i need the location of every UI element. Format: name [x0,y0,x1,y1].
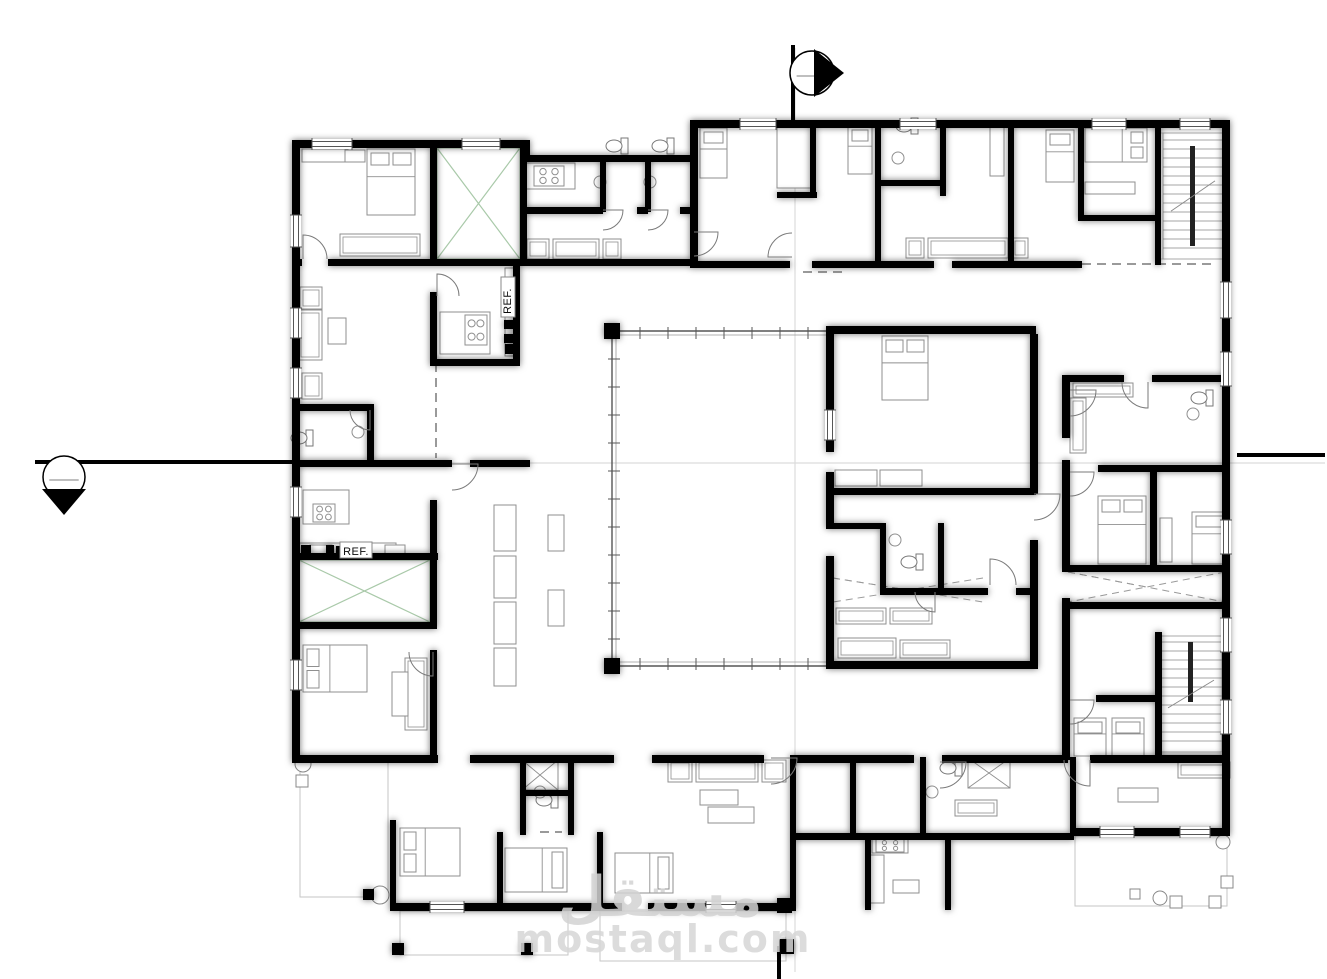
watermark-latin: mostaql.com [514,917,811,961]
section-marker-top [790,49,844,97]
lightwell-dashed-layer [833,572,1225,602]
floor-plan-svg: REF. REF. مستقل mostaql.com [0,0,1327,979]
refrigerator-label-horizontal: REF. [343,546,369,558]
door-swing-layer [303,210,1148,788]
courtyard-glazing-layer [608,327,830,670]
refrigerator-label-vertical: REF. [502,288,514,314]
staircase-layer [1160,133,1223,752]
floor-plan-page: REF. REF. مستقل mostaql.com [0,0,1327,979]
section-marker-left [42,456,86,515]
